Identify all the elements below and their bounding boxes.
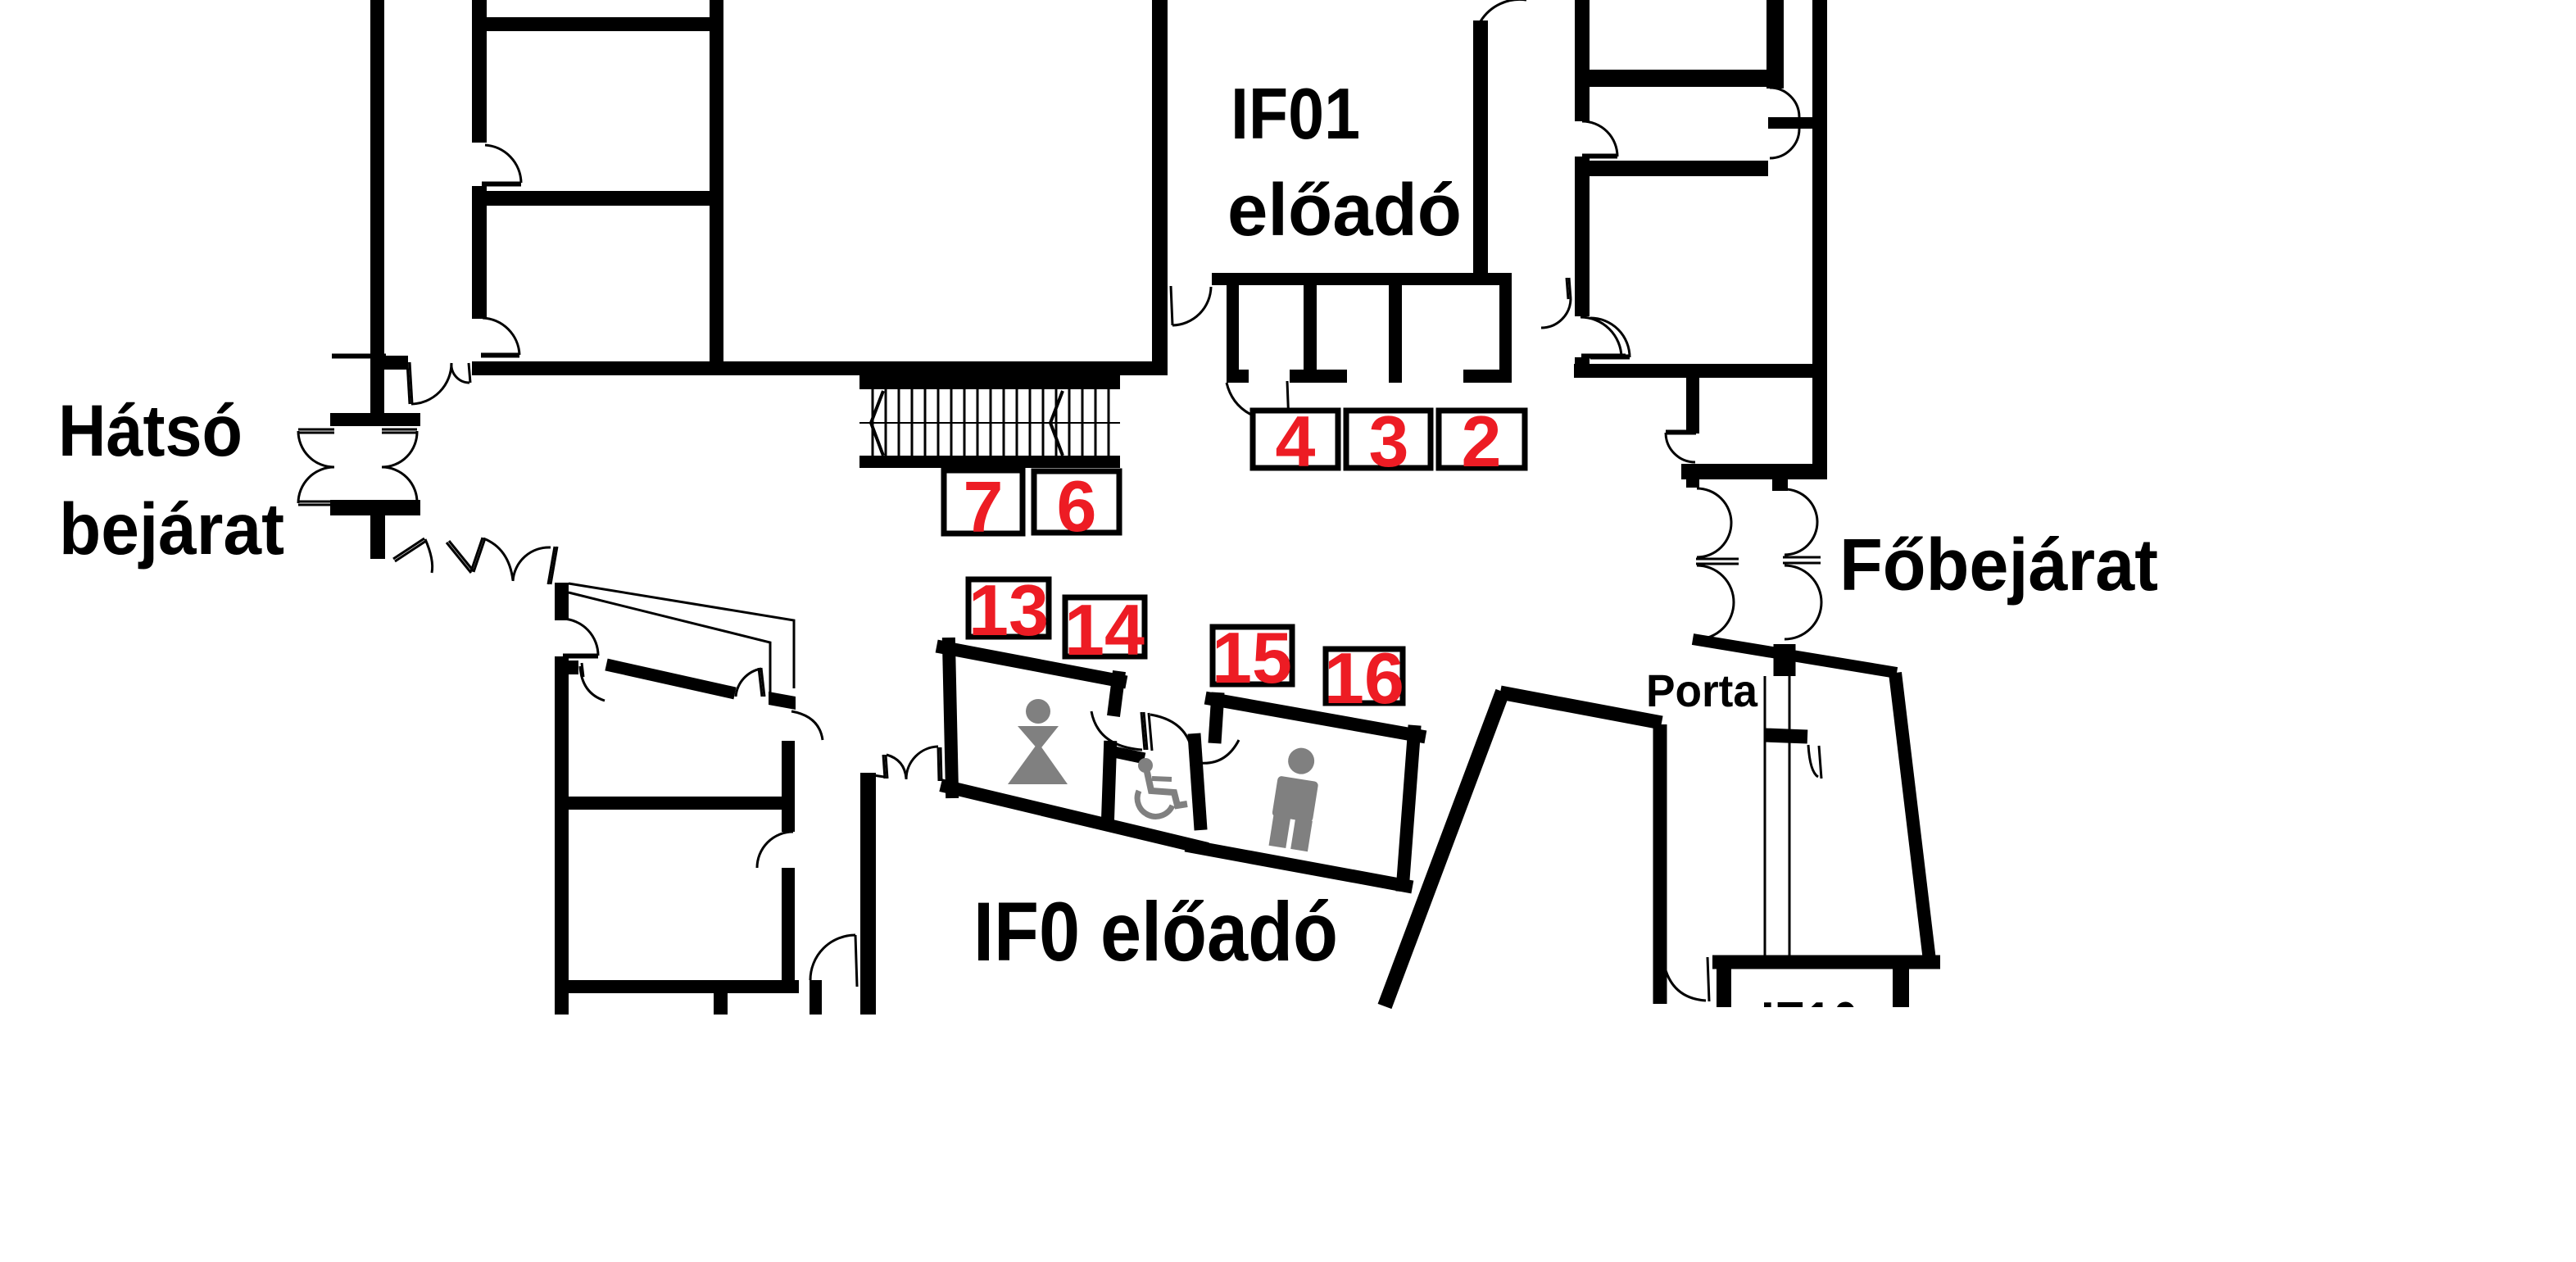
svg-text:2: 2 — [1462, 401, 1502, 482]
svg-text:7: 7 — [964, 466, 1004, 547]
svg-text:3: 3 — [1369, 401, 1409, 482]
svg-text:4: 4 — [1276, 401, 1316, 482]
svg-text:bejárat: bejárat — [59, 488, 284, 570]
svg-text:IF0 előadó: IF0 előadó — [973, 885, 1338, 978]
svg-text:14: 14 — [1064, 589, 1145, 670]
svg-text:15: 15 — [1212, 617, 1292, 698]
svg-text:Porta: Porta — [1646, 665, 1758, 716]
svg-text:16: 16 — [1324, 638, 1404, 719]
svg-text:előadó: előadó — [1227, 170, 1462, 252]
svg-text:Főbejárat: Főbejárat — [1839, 524, 2158, 606]
svg-text:6: 6 — [1057, 465, 1097, 547]
svg-text:Hátsó: Hátsó — [58, 389, 243, 471]
svg-text:13: 13 — [968, 570, 1049, 651]
svg-text:IF01: IF01 — [1231, 73, 1360, 154]
